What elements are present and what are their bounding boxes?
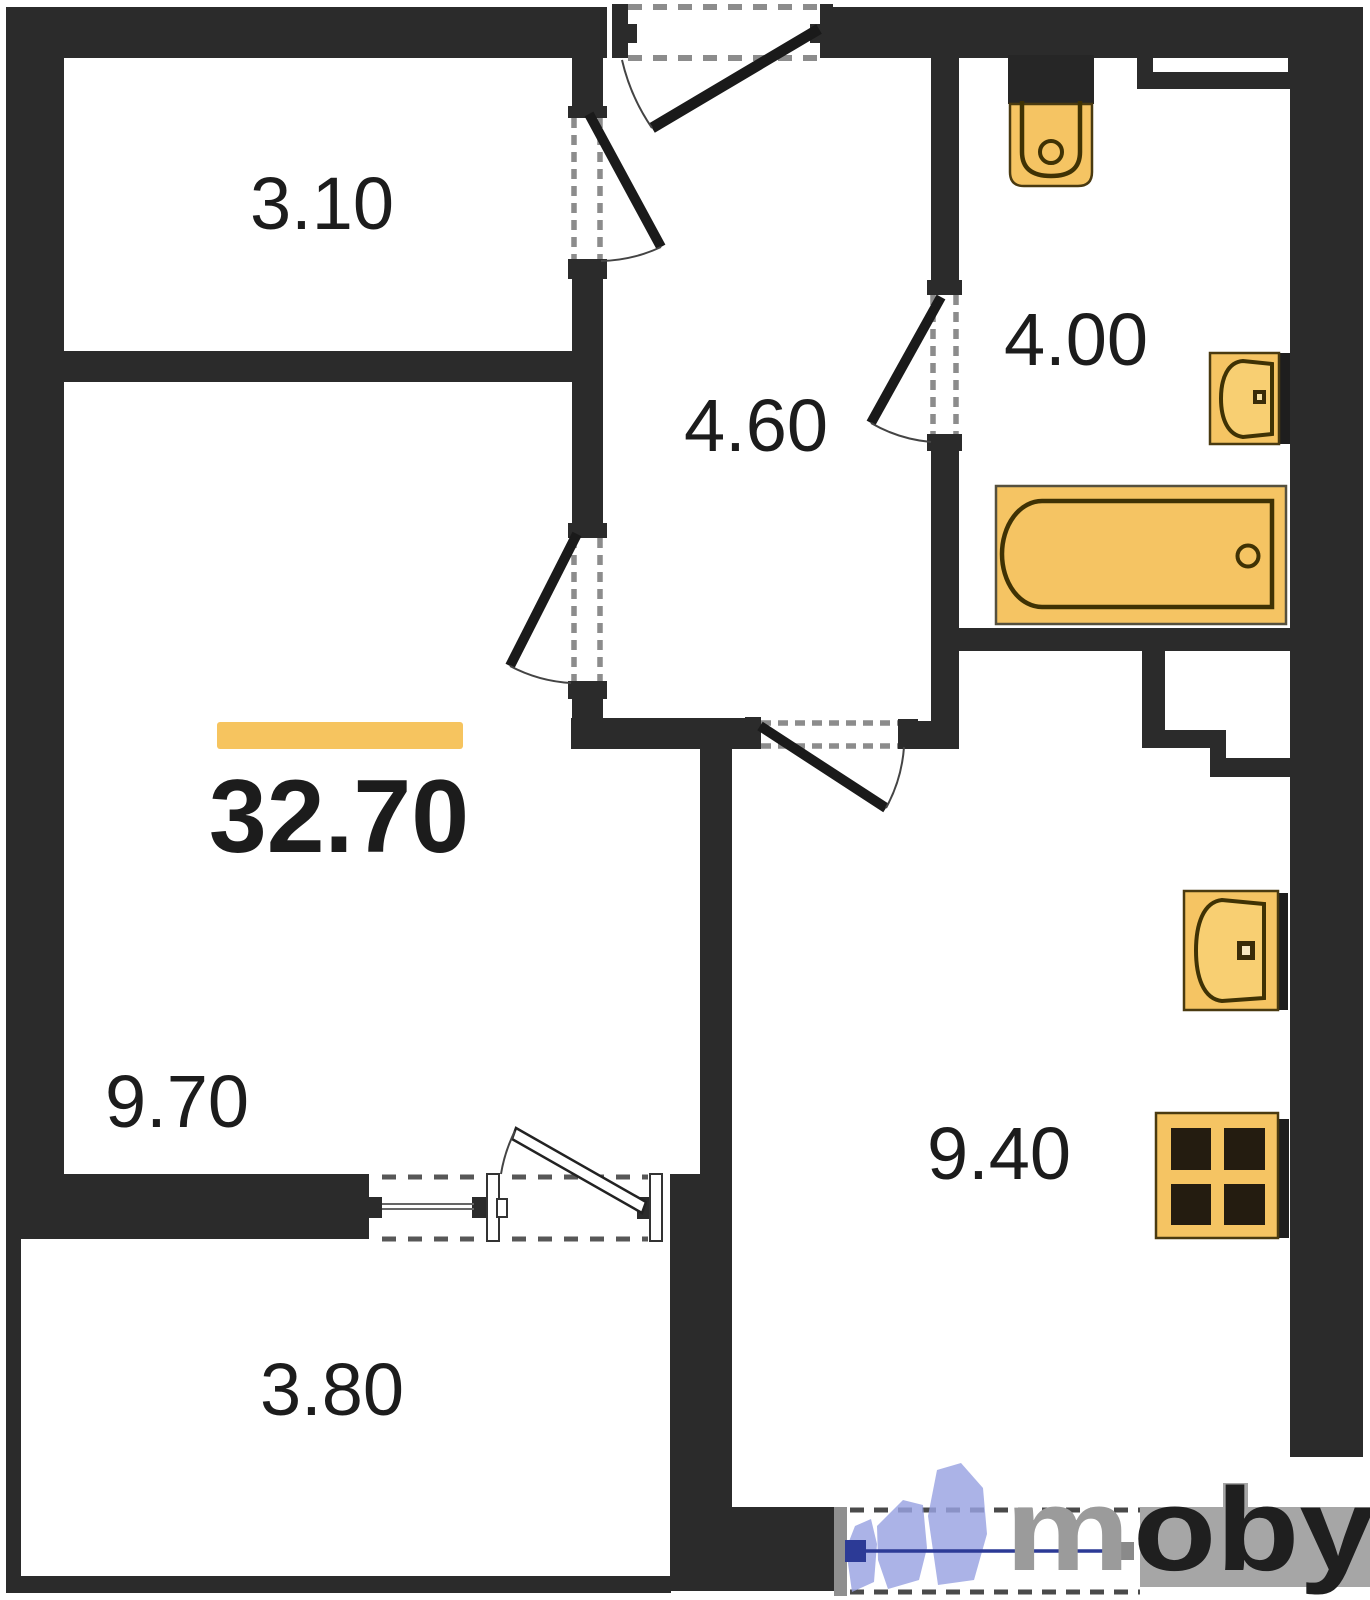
svg-text:m: m (1005, 1464, 1130, 1596)
svg-text:9.40: 9.40 (927, 1112, 1071, 1195)
svg-text:oby: oby (1133, 1464, 1370, 1596)
svg-text:4.60: 4.60 (684, 384, 828, 467)
svg-text:9.70: 9.70 (105, 1060, 249, 1143)
svg-text:32.70: 32.70 (209, 759, 469, 875)
svg-text:3.10: 3.10 (250, 162, 394, 245)
svg-text:3.80: 3.80 (260, 1348, 404, 1431)
svg-text:4.00: 4.00 (1004, 298, 1148, 381)
